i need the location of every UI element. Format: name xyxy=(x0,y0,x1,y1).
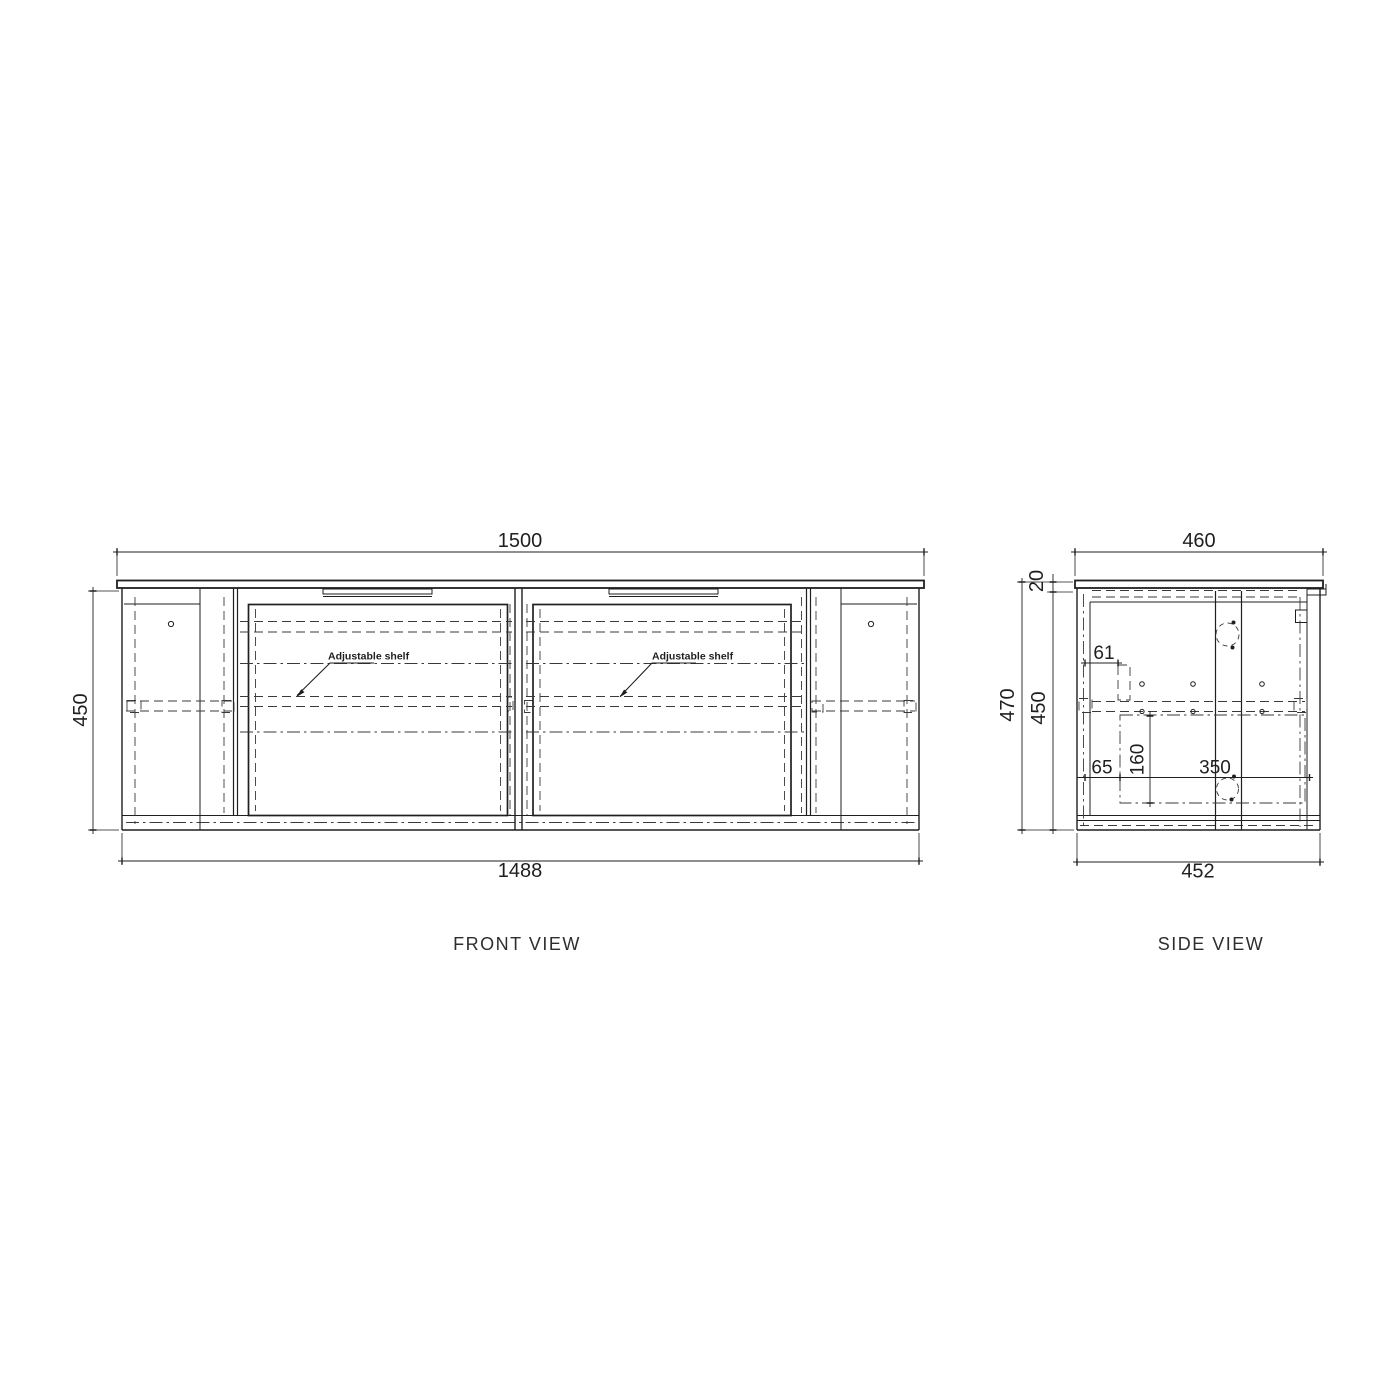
side-carcass xyxy=(1077,588,1320,830)
side-pin-holes xyxy=(1140,682,1265,714)
end-panel-right-hidden-lines xyxy=(812,597,915,824)
side-dim-drawer-offsets: 65 350 xyxy=(1077,758,1313,782)
side-rail-hidden-lines xyxy=(1080,591,1317,826)
front-end-panel-right xyxy=(812,589,917,831)
front-dim-height: 450 xyxy=(70,587,119,834)
shelf-pin-hole xyxy=(868,621,873,626)
shelf-pin-hole xyxy=(168,621,173,626)
dim-value-450-side: 450 xyxy=(1028,691,1050,724)
front-end-panel-left xyxy=(124,589,232,831)
side-countertop xyxy=(1075,581,1323,589)
cabinet-technical-drawing: Adjustable shelf Adjustable shelf 1500 4… xyxy=(0,0,1400,1400)
front-door-right xyxy=(526,589,804,816)
dim-value-61: 61 xyxy=(1093,643,1114,664)
dim-value-460: 460 xyxy=(1182,530,1215,552)
dim-value-350: 350 xyxy=(1199,758,1231,779)
cable-hole-top xyxy=(1216,623,1239,646)
dim-value-1500: 1500 xyxy=(498,530,543,552)
side-dim-bracket-offset: 61 xyxy=(1081,643,1122,667)
side-shelf-hidden-lines xyxy=(1079,665,1307,713)
dim-value-65: 65 xyxy=(1091,758,1112,779)
dim-value-470: 470 xyxy=(997,688,1019,721)
front-view-label: FRONT VIEW xyxy=(453,934,581,954)
front-dim-width-bottom: 1488 xyxy=(118,833,923,882)
front-carcass-outline xyxy=(122,588,919,830)
front-dim-width-top: 1500 xyxy=(113,530,928,576)
front-door-left xyxy=(240,589,512,816)
dim-value-20: 20 xyxy=(1026,570,1048,592)
dim-value-160: 160 xyxy=(1128,744,1149,776)
shelf-note-left-text: Adjustable shelf xyxy=(328,651,410,663)
side-top-bracket xyxy=(1296,610,1308,623)
shelf-pin-hole xyxy=(1140,682,1145,687)
dim-value-452: 452 xyxy=(1181,861,1214,883)
side-view: 460 470 20 450 61 65 350 xyxy=(997,530,1327,954)
cable-hole-dot xyxy=(1230,798,1234,802)
cable-hole-bottom xyxy=(1217,778,1239,800)
front-stiles xyxy=(127,589,916,831)
door-left-face xyxy=(249,605,508,816)
side-partition xyxy=(1216,591,1242,830)
cad-drawing-sheet: Adjustable shelf Adjustable shelf 1500 4… xyxy=(0,0,1400,1400)
shelf-pin-hole xyxy=(1191,682,1196,687)
shelf-note-right-text: Adjustable shelf xyxy=(652,651,734,663)
side-dim-width-top: 460 xyxy=(1071,530,1327,576)
cable-hole-dot xyxy=(1231,646,1235,650)
side-dim-drawer-height: 160 xyxy=(1128,711,1154,807)
dim-value-1488: 1488 xyxy=(498,860,543,882)
dim-value-450-front: 450 xyxy=(70,693,92,726)
door-right-handle-recess xyxy=(609,589,718,594)
side-shelf-hidden xyxy=(1079,665,1307,713)
front-view: Adjustable shelf Adjustable shelf 1500 4… xyxy=(70,530,928,954)
end-panel-right-lines xyxy=(841,589,917,831)
door-right-face xyxy=(533,605,791,816)
side-dim-width-bottom: 452 xyxy=(1073,833,1324,883)
cable-hole-dot xyxy=(1232,621,1236,625)
front-center-stile xyxy=(515,589,522,831)
front-countertop xyxy=(117,581,924,589)
side-view-label: SIDE VIEW xyxy=(1158,934,1265,954)
door-left-handle-recess xyxy=(323,589,432,594)
side-carcass-inner-lines xyxy=(1077,589,1320,830)
end-panel-left-hidden-lines xyxy=(126,597,232,824)
shelf-pin-hole xyxy=(1260,682,1265,687)
side-carcass-outline xyxy=(1077,588,1320,830)
side-dim-thickness-and-height: 20 450 xyxy=(1026,570,1073,834)
